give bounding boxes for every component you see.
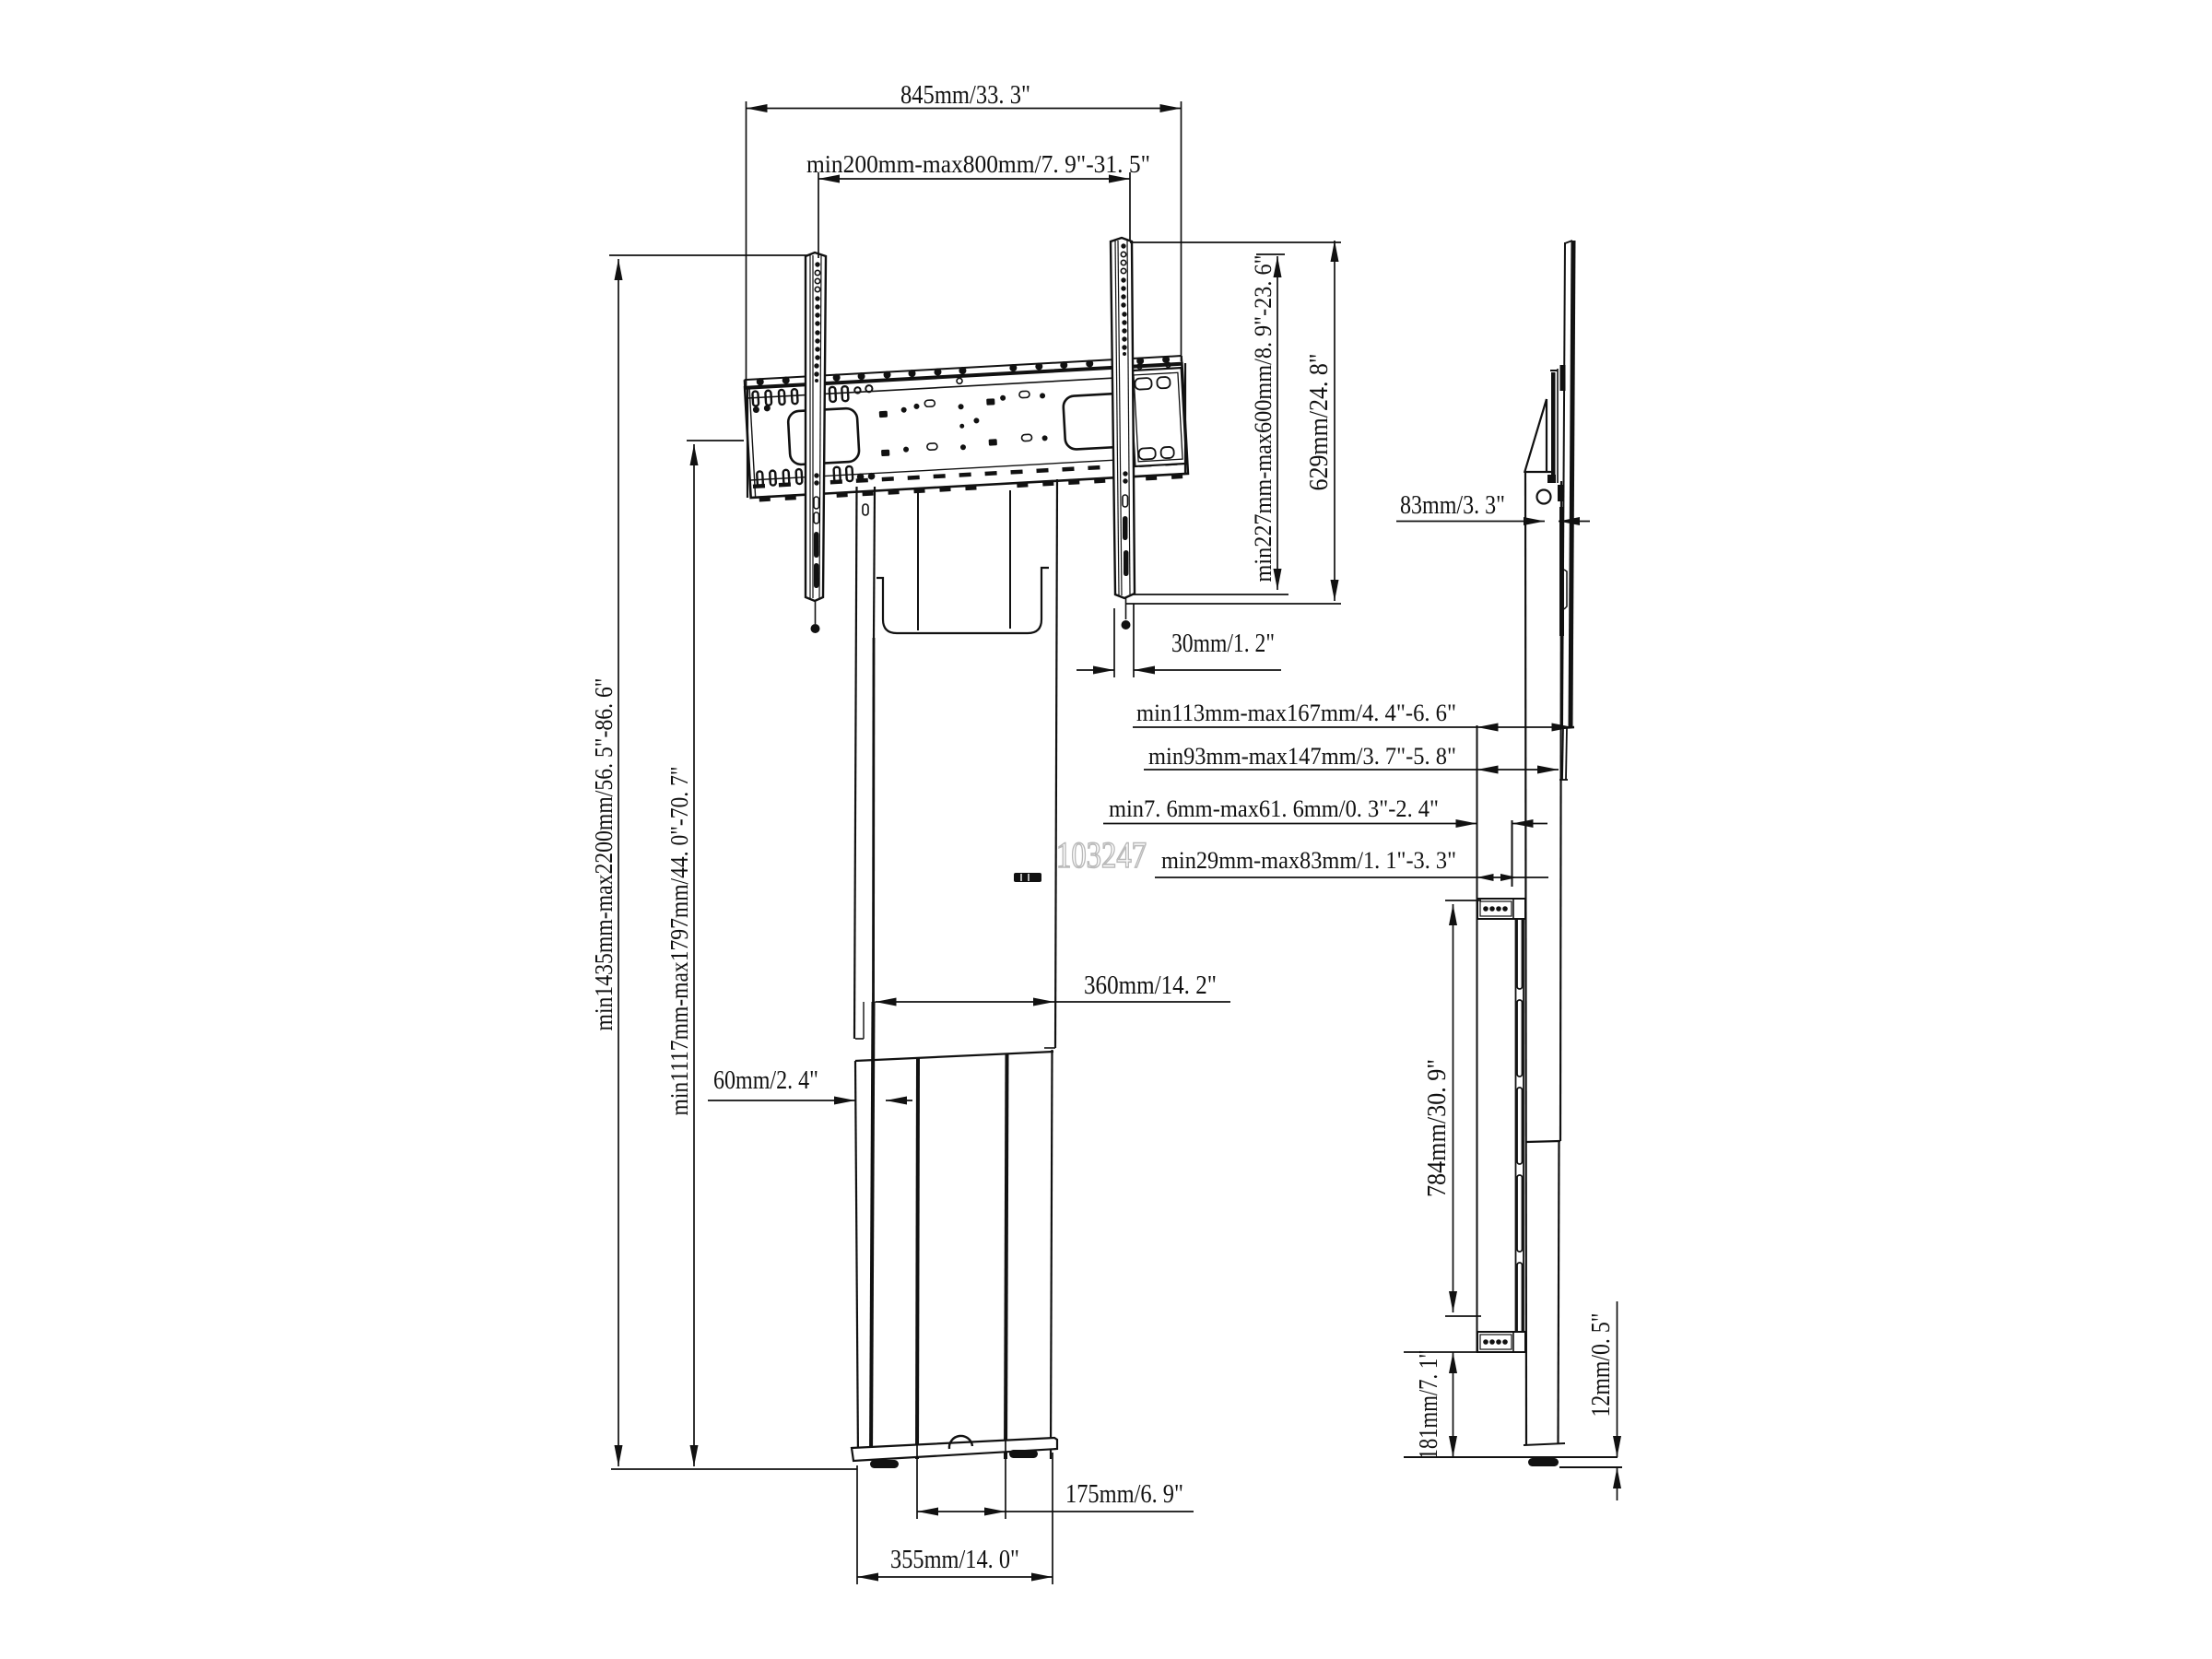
svg-text:min200mm-max800mm/7. 9"-31. 5": min200mm-max800mm/7. 9"-31. 5" xyxy=(806,150,1150,178)
svg-text:min29mm-max83mm/1. 1"-3. 3": min29mm-max83mm/1. 1"-3. 3" xyxy=(1161,847,1456,874)
svg-text:min1435mm-max2200mm/56. 5"-86.: min1435mm-max2200mm/56. 5"-86. 6" xyxy=(590,678,618,1031)
svg-text:181mm/7. 1": 181mm/7. 1" xyxy=(1415,1350,1443,1460)
svg-text:min113mm-max167mm/4. 4"-6. 6": min113mm-max167mm/4. 4"-6. 6" xyxy=(1136,700,1456,726)
svg-text:12mm/0. 5": 12mm/0. 5" xyxy=(1587,1313,1616,1418)
svg-text:175mm/6. 9": 175mm/6. 9" xyxy=(1065,1480,1183,1509)
svg-text:103247: 103247 xyxy=(1056,834,1147,876)
svg-text:min93mm-max147mm/3. 7"-5. 8": min93mm-max147mm/3. 7"-5. 8" xyxy=(1148,743,1456,770)
svg-text:min1117mm-max1797mm/44. 0"-70.: min1117mm-max1797mm/44. 0"-70. 7" xyxy=(665,767,693,1116)
svg-text:845mm/33. 3": 845mm/33. 3" xyxy=(900,80,1030,110)
svg-text:784mm/30. 9": 784mm/30. 9" xyxy=(1423,1059,1452,1197)
svg-text:60mm/2. 4": 60mm/2. 4" xyxy=(713,1066,818,1095)
svg-text:30mm/1. 2": 30mm/1. 2" xyxy=(1171,629,1275,658)
svg-text:360mm/14. 2": 360mm/14. 2" xyxy=(1084,971,1217,1000)
svg-text:629mm/24. 8": 629mm/24. 8" xyxy=(1305,354,1334,491)
svg-text:355mm/14. 0": 355mm/14. 0" xyxy=(890,1546,1019,1574)
svg-text:min7. 6mm-max61. 6mm/0. 3"-2.: min7. 6mm-max61. 6mm/0. 3"-2. 4" xyxy=(1109,795,1439,822)
svg-text:83mm/3. 3": 83mm/3. 3" xyxy=(1400,491,1505,520)
svg-text:min227mm-max600mm/8. 9"-23. 6": min227mm-max600mm/8. 9"-23. 6" xyxy=(1250,255,1277,582)
